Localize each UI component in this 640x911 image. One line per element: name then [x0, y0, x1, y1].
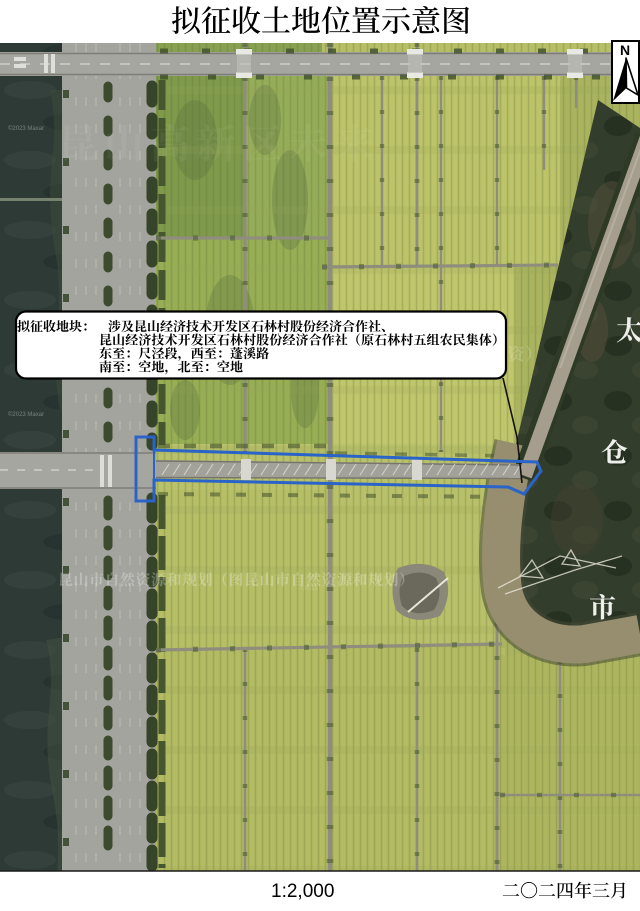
svg-text:N: N	[620, 42, 630, 58]
svg-text:©2023 Maxar: ©2023 Maxar	[8, 411, 44, 418]
svg-text:1:2,000: 1:2,000	[271, 881, 334, 902]
svg-text:©2023: ©2023	[300, 585, 318, 592]
svg-text:©2023 Maxar: ©2023 Maxar	[8, 125, 44, 132]
